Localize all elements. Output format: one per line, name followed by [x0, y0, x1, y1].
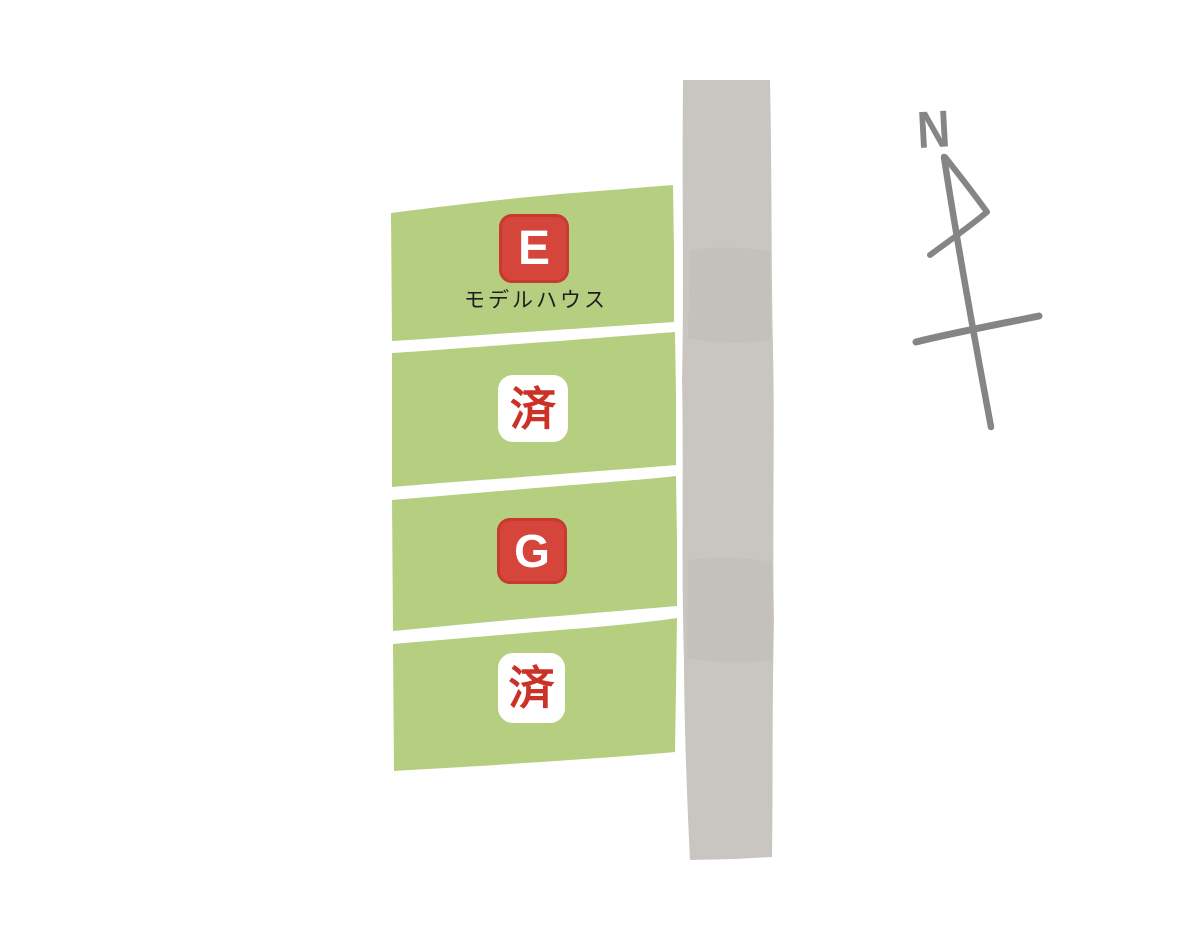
lot-map: N E モデルハウス 済 G 済 [0, 0, 1200, 938]
parcel-badge-sold-2[interactable]: 済 [498, 653, 565, 723]
compass-north-label: N [916, 101, 952, 160]
compass-needle [944, 157, 991, 427]
parcel-badge-e[interactable]: E [499, 214, 569, 283]
parcel-badge-g[interactable]: G [497, 518, 567, 584]
road-shape [682, 80, 774, 860]
model-house-caption: モデルハウス [406, 284, 666, 314]
site-plan-drawing: N [0, 0, 1200, 938]
compass: N [916, 101, 1039, 427]
road-texture [687, 557, 773, 662]
road-texture [688, 247, 771, 342]
parcel-badge-sold-1[interactable]: 済 [498, 375, 568, 442]
